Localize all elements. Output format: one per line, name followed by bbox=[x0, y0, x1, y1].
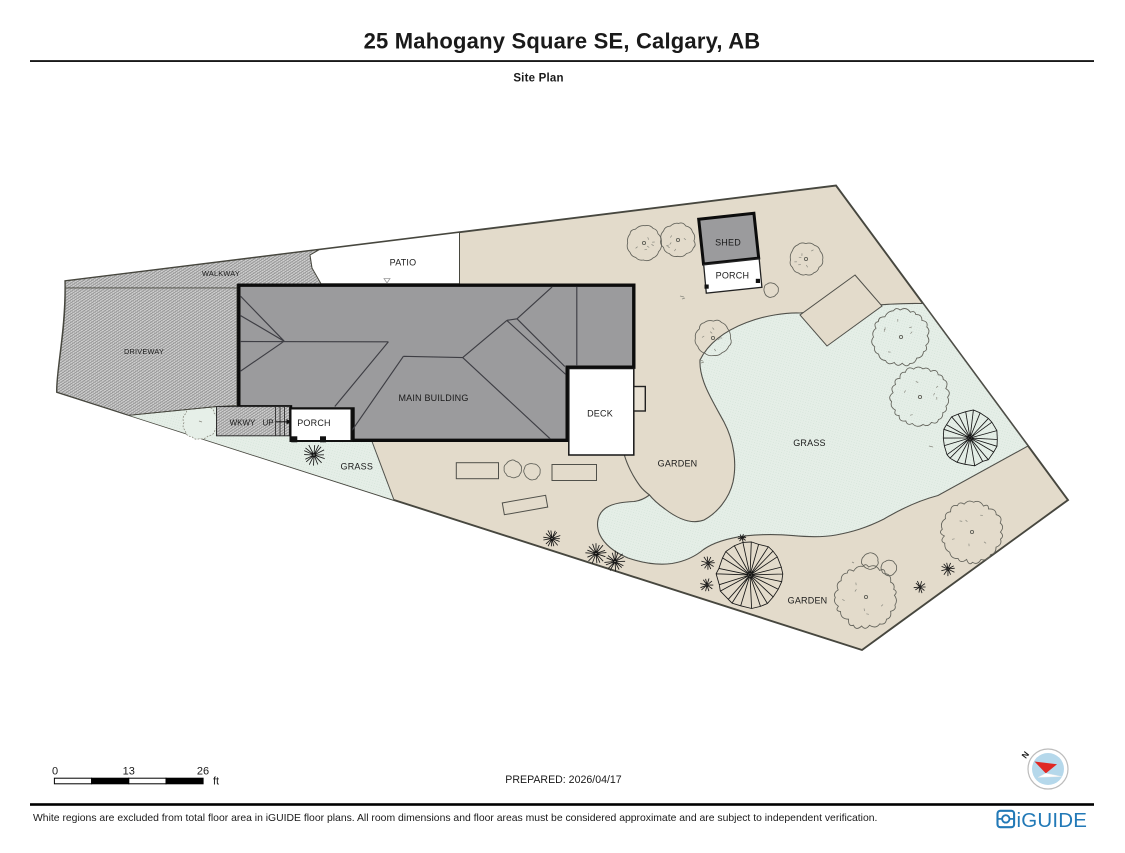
svg-text:25 Mahogany Square SE, Calgary: 25 Mahogany Square SE, Calgary, AB bbox=[364, 29, 761, 54]
svg-text:GRASS: GRASS bbox=[793, 438, 826, 448]
svg-text:ft: ft bbox=[213, 776, 219, 788]
svg-text:GRASS: GRASS bbox=[341, 462, 374, 472]
svg-text:DECK: DECK bbox=[587, 408, 613, 418]
svg-text:WKWY: WKWY bbox=[230, 418, 256, 427]
svg-text:iGUIDE: iGUIDE bbox=[1017, 809, 1088, 832]
svg-text:MAIN BUILDING: MAIN BUILDING bbox=[398, 393, 468, 403]
svg-text:13: 13 bbox=[123, 766, 135, 778]
svg-text:PORCH: PORCH bbox=[297, 418, 331, 428]
svg-text:GARDEN: GARDEN bbox=[658, 459, 698, 469]
svg-text:GARDEN: GARDEN bbox=[788, 596, 828, 606]
svg-text:WALKWAY: WALKWAY bbox=[202, 269, 240, 278]
svg-text:0: 0 bbox=[52, 766, 58, 778]
svg-text:DRIVEWAY: DRIVEWAY bbox=[124, 347, 164, 356]
svg-text:PORCH: PORCH bbox=[716, 271, 750, 281]
svg-text:PREPARED: 2026/04/17: PREPARED: 2026/04/17 bbox=[505, 774, 622, 786]
svg-text:Site Plan: Site Plan bbox=[513, 73, 563, 85]
svg-text:SHED: SHED bbox=[715, 237, 741, 247]
svg-text:White regions are excluded fro: White regions are excluded from total fl… bbox=[33, 813, 877, 824]
svg-text:UP: UP bbox=[262, 418, 273, 427]
svg-text:26: 26 bbox=[197, 766, 209, 778]
svg-text:PATIO: PATIO bbox=[390, 257, 417, 267]
svg-text:N: N bbox=[1019, 749, 1031, 760]
